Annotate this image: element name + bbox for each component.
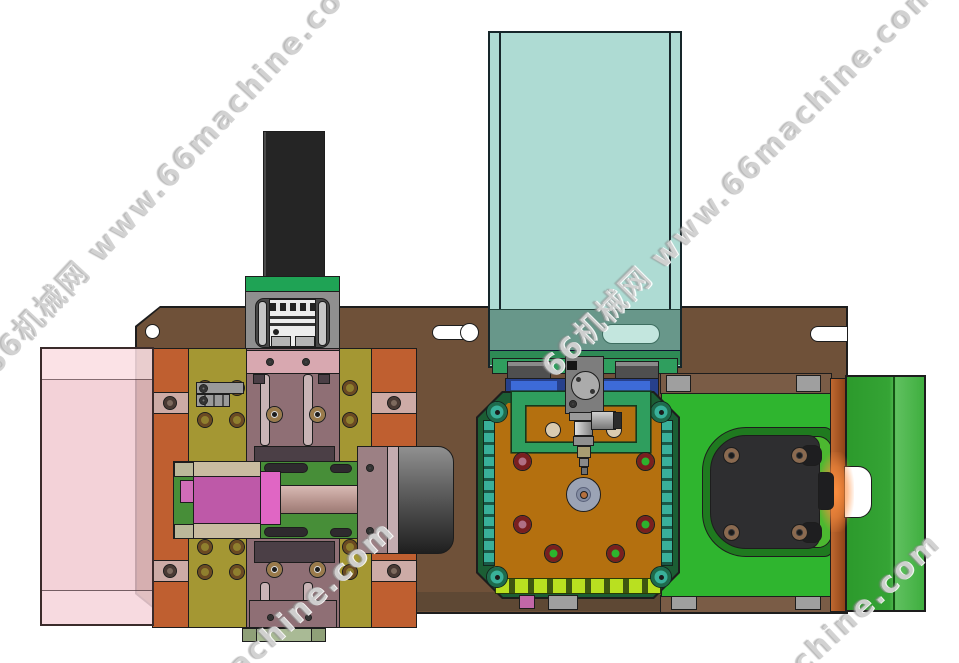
bolt — [163, 564, 177, 578]
base-plate-slot-left-circle — [460, 323, 479, 342]
fitting-ring — [573, 436, 594, 446]
bar-fitting — [795, 595, 821, 610]
pink-cover-top-band — [42, 349, 152, 379]
bar-fitting — [548, 595, 578, 610]
bolt — [723, 524, 740, 541]
pink-cover-mid — [42, 379, 152, 590]
bolt — [387, 564, 401, 578]
cylinder-cap-top — [193, 461, 261, 477]
column-green-cap — [245, 276, 340, 292]
pink-cover-bottom-band — [42, 590, 152, 624]
cylinder-cap-bottom — [193, 523, 261, 539]
bolt — [229, 539, 245, 555]
frame-strip-left — [483, 420, 495, 566]
corner-boss — [486, 566, 508, 588]
bolt — [636, 515, 655, 534]
corner-boss — [650, 566, 672, 588]
sensor-line-1 — [270, 316, 315, 319]
mount-slot — [330, 464, 352, 473]
sensor-dot — [273, 329, 279, 335]
corner-boss — [650, 401, 672, 423]
bolt — [266, 358, 274, 366]
bar-fitting — [666, 375, 691, 392]
bolt — [197, 412, 213, 428]
bolt — [606, 544, 625, 563]
bolt — [366, 464, 374, 472]
bolt — [197, 539, 213, 555]
corner-boss — [486, 401, 508, 423]
rail-foot-end-right — [311, 628, 326, 642]
bolt — [513, 452, 532, 471]
bolt — [636, 452, 655, 471]
pneumatic-cylinder-body — [193, 476, 261, 524]
bolt — [569, 400, 577, 408]
bar-fitting — [796, 375, 821, 392]
housing-rail-left — [258, 301, 267, 346]
bolt — [163, 396, 177, 410]
sensor-block-right — [295, 336, 315, 347]
sensor-block-left — [271, 336, 291, 347]
bolt — [197, 564, 213, 580]
pink-spacer — [519, 595, 535, 609]
mount-pale-tab-bottom — [174, 524, 194, 539]
center-hub-pin — [580, 491, 588, 499]
sensor-line-2 — [270, 323, 315, 326]
fitting-tip-end — [581, 467, 588, 475]
bolt — [791, 524, 808, 541]
locating-pin — [545, 422, 561, 438]
bolt — [723, 447, 740, 464]
fitting-brass — [577, 446, 591, 458]
piston-rod — [280, 485, 359, 514]
fitting-tip — [579, 458, 589, 467]
gripper-cylinder — [398, 446, 454, 554]
bolt — [791, 447, 808, 464]
cylinder-flange — [260, 471, 281, 525]
rail-end-cap-right — [318, 374, 330, 384]
bolt — [199, 384, 208, 393]
bolt — [266, 561, 283, 578]
frame-strip-right — [661, 420, 673, 566]
frame-strip-bottom — [495, 578, 661, 594]
base-plate-hole — [145, 324, 160, 339]
bar-fitting — [671, 595, 697, 610]
valve-face-dot — [576, 377, 581, 382]
bolt — [342, 380, 358, 396]
valve-face — [571, 371, 600, 400]
bolt — [387, 396, 401, 410]
housing-rail-right — [318, 301, 327, 346]
sensor-barcode — [270, 303, 315, 311]
bolt — [199, 396, 208, 405]
rail-top-cap — [246, 350, 340, 374]
valve-face-dot — [590, 389, 595, 394]
mount-slot — [264, 527, 308, 537]
rail-end-cap-left — [253, 374, 265, 384]
cad-assembly-canvas: 66机械网 www.66machine.com 66机械网 www.66mach… — [0, 0, 959, 663]
motor-shaft — [818, 472, 834, 510]
bolt — [266, 406, 283, 423]
elbow-cap — [613, 412, 622, 429]
bolt — [342, 412, 358, 428]
bolt — [302, 358, 310, 366]
bolt — [513, 515, 532, 534]
vertical-column — [263, 131, 325, 278]
cylinder-rear-nub — [180, 480, 194, 503]
bolt — [229, 412, 245, 428]
bolt — [229, 564, 245, 580]
mount-pale-tab-top — [174, 462, 194, 477]
bolt — [544, 544, 563, 563]
pink-cover-box — [40, 347, 154, 626]
base-plate-slot-right — [810, 326, 847, 342]
bolt — [309, 406, 326, 423]
